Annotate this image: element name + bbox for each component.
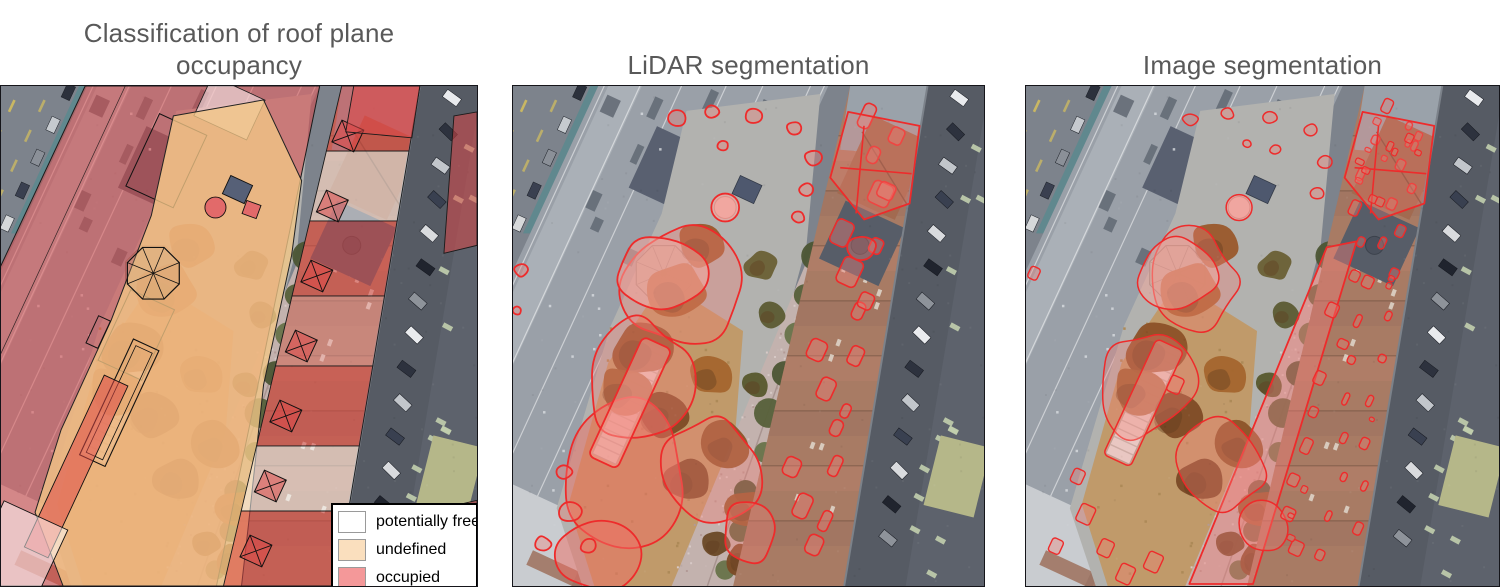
- panel-image-title: Image segmentation: [1025, 0, 1500, 81]
- image-segmentation-image: [1025, 85, 1500, 587]
- title-line: Classification of roof plane: [84, 17, 395, 49]
- legend-swatch-undefined: [338, 539, 366, 561]
- panel-lidar-title: LiDAR segmentation: [512, 0, 985, 81]
- legend-swatch-occupied: [338, 567, 366, 587]
- panel-lidar: LiDAR segmentation: [512, 0, 985, 587]
- image-overlay-svg: [1026, 86, 1499, 586]
- legend-label: potentially free: [376, 513, 478, 531]
- title-line: Image segmentation: [1143, 49, 1382, 81]
- title-line: occupancy: [176, 49, 302, 81]
- panel-image-seg: Image segmentation: [1025, 0, 1500, 587]
- legend-row: occupied: [338, 566, 472, 587]
- legend-row: potentially free: [338, 510, 472, 534]
- title-line: LiDAR segmentation: [627, 49, 869, 81]
- legend: potentially free undefined occupied: [331, 503, 478, 587]
- classification-map-image: potentially free undefined occupied: [0, 85, 478, 587]
- legend-row: undefined: [338, 538, 472, 562]
- figure-roof-occupancy: Classification of roof plane occupancy p…: [0, 0, 1500, 587]
- legend-label: occupied: [376, 569, 440, 587]
- panel-classification-title: Classification of roof plane occupancy: [0, 0, 478, 81]
- legend-label: undefined: [376, 541, 446, 559]
- lidar-overlay-svg: [513, 86, 984, 586]
- panel-classification: Classification of roof plane occupancy p…: [0, 0, 478, 587]
- lidar-segmentation-image: [512, 85, 985, 587]
- legend-swatch-potentially-free: [338, 511, 366, 533]
